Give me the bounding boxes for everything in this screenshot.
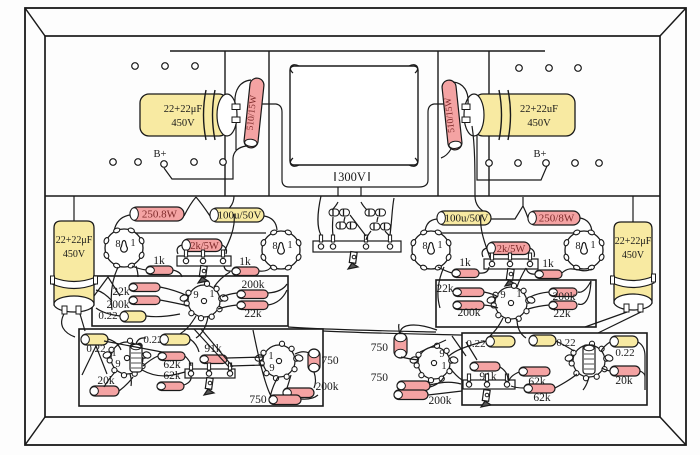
svg-text:20k: 20k bbox=[97, 375, 115, 387]
svg-text:100u/50V: 100u/50V bbox=[218, 210, 262, 222]
svg-text:22+22μF: 22+22μF bbox=[615, 236, 652, 247]
svg-text:9: 9 bbox=[269, 363, 274, 374]
svg-text:1k: 1k bbox=[153, 255, 165, 267]
svg-text:250.8W: 250.8W bbox=[142, 209, 178, 221]
svg-text:22+22μF: 22+22μF bbox=[56, 235, 93, 246]
svg-text:1: 1 bbox=[441, 361, 446, 372]
svg-text:8: 8 bbox=[272, 241, 277, 252]
svg-text:200k: 200k bbox=[429, 395, 452, 407]
svg-text:1k: 1k bbox=[459, 257, 471, 269]
svg-text:200k: 200k bbox=[242, 279, 265, 291]
svg-text:20k: 20k bbox=[615, 375, 633, 387]
svg-text:1: 1 bbox=[209, 289, 214, 300]
svg-text:450V: 450V bbox=[622, 250, 645, 261]
svg-text:9: 9 bbox=[115, 359, 120, 370]
svg-text:8: 8 bbox=[575, 241, 580, 252]
svg-text:B+: B+ bbox=[534, 149, 547, 160]
svg-text:1: 1 bbox=[287, 240, 292, 251]
svg-text:9: 9 bbox=[193, 290, 198, 301]
svg-text:1: 1 bbox=[590, 240, 595, 251]
svg-text:450V: 450V bbox=[63, 249, 86, 260]
svg-text:1: 1 bbox=[268, 351, 273, 362]
svg-text:450V: 450V bbox=[527, 118, 551, 129]
svg-text:8: 8 bbox=[115, 239, 120, 250]
svg-text:450V: 450V bbox=[171, 118, 195, 129]
svg-text:22k: 22k bbox=[244, 308, 262, 320]
svg-text:1: 1 bbox=[111, 348, 116, 359]
svg-text:22k: 22k bbox=[553, 308, 571, 320]
svg-text:300V: 300V bbox=[338, 170, 366, 184]
svg-text:750: 750 bbox=[249, 394, 267, 406]
svg-text:B+: B+ bbox=[154, 149, 167, 160]
svg-text:1k: 1k bbox=[239, 256, 251, 268]
svg-text:1k: 1k bbox=[542, 258, 554, 270]
svg-text:1: 1 bbox=[516, 289, 521, 300]
svg-text:1: 1 bbox=[130, 238, 135, 249]
svg-text:750: 750 bbox=[371, 342, 389, 354]
svg-text:22+22μF: 22+22μF bbox=[164, 104, 203, 115]
svg-text:9: 9 bbox=[500, 290, 505, 301]
svg-text:200k: 200k bbox=[458, 307, 481, 319]
svg-text:62k: 62k bbox=[533, 392, 551, 404]
svg-text:100u/50V: 100u/50V bbox=[445, 213, 489, 225]
svg-text:200k: 200k bbox=[316, 381, 339, 393]
svg-text:9: 9 bbox=[439, 349, 444, 360]
svg-text:750: 750 bbox=[321, 355, 339, 367]
svg-text:0.22: 0.22 bbox=[615, 347, 634, 359]
svg-text:0.22: 0.22 bbox=[98, 310, 117, 322]
svg-text:1: 1 bbox=[437, 240, 442, 251]
svg-text:250/8W: 250/8W bbox=[539, 213, 575, 225]
svg-text:8: 8 bbox=[422, 241, 427, 252]
svg-text:750: 750 bbox=[371, 372, 389, 384]
svg-text:22+22uF: 22+22uF bbox=[520, 104, 558, 115]
